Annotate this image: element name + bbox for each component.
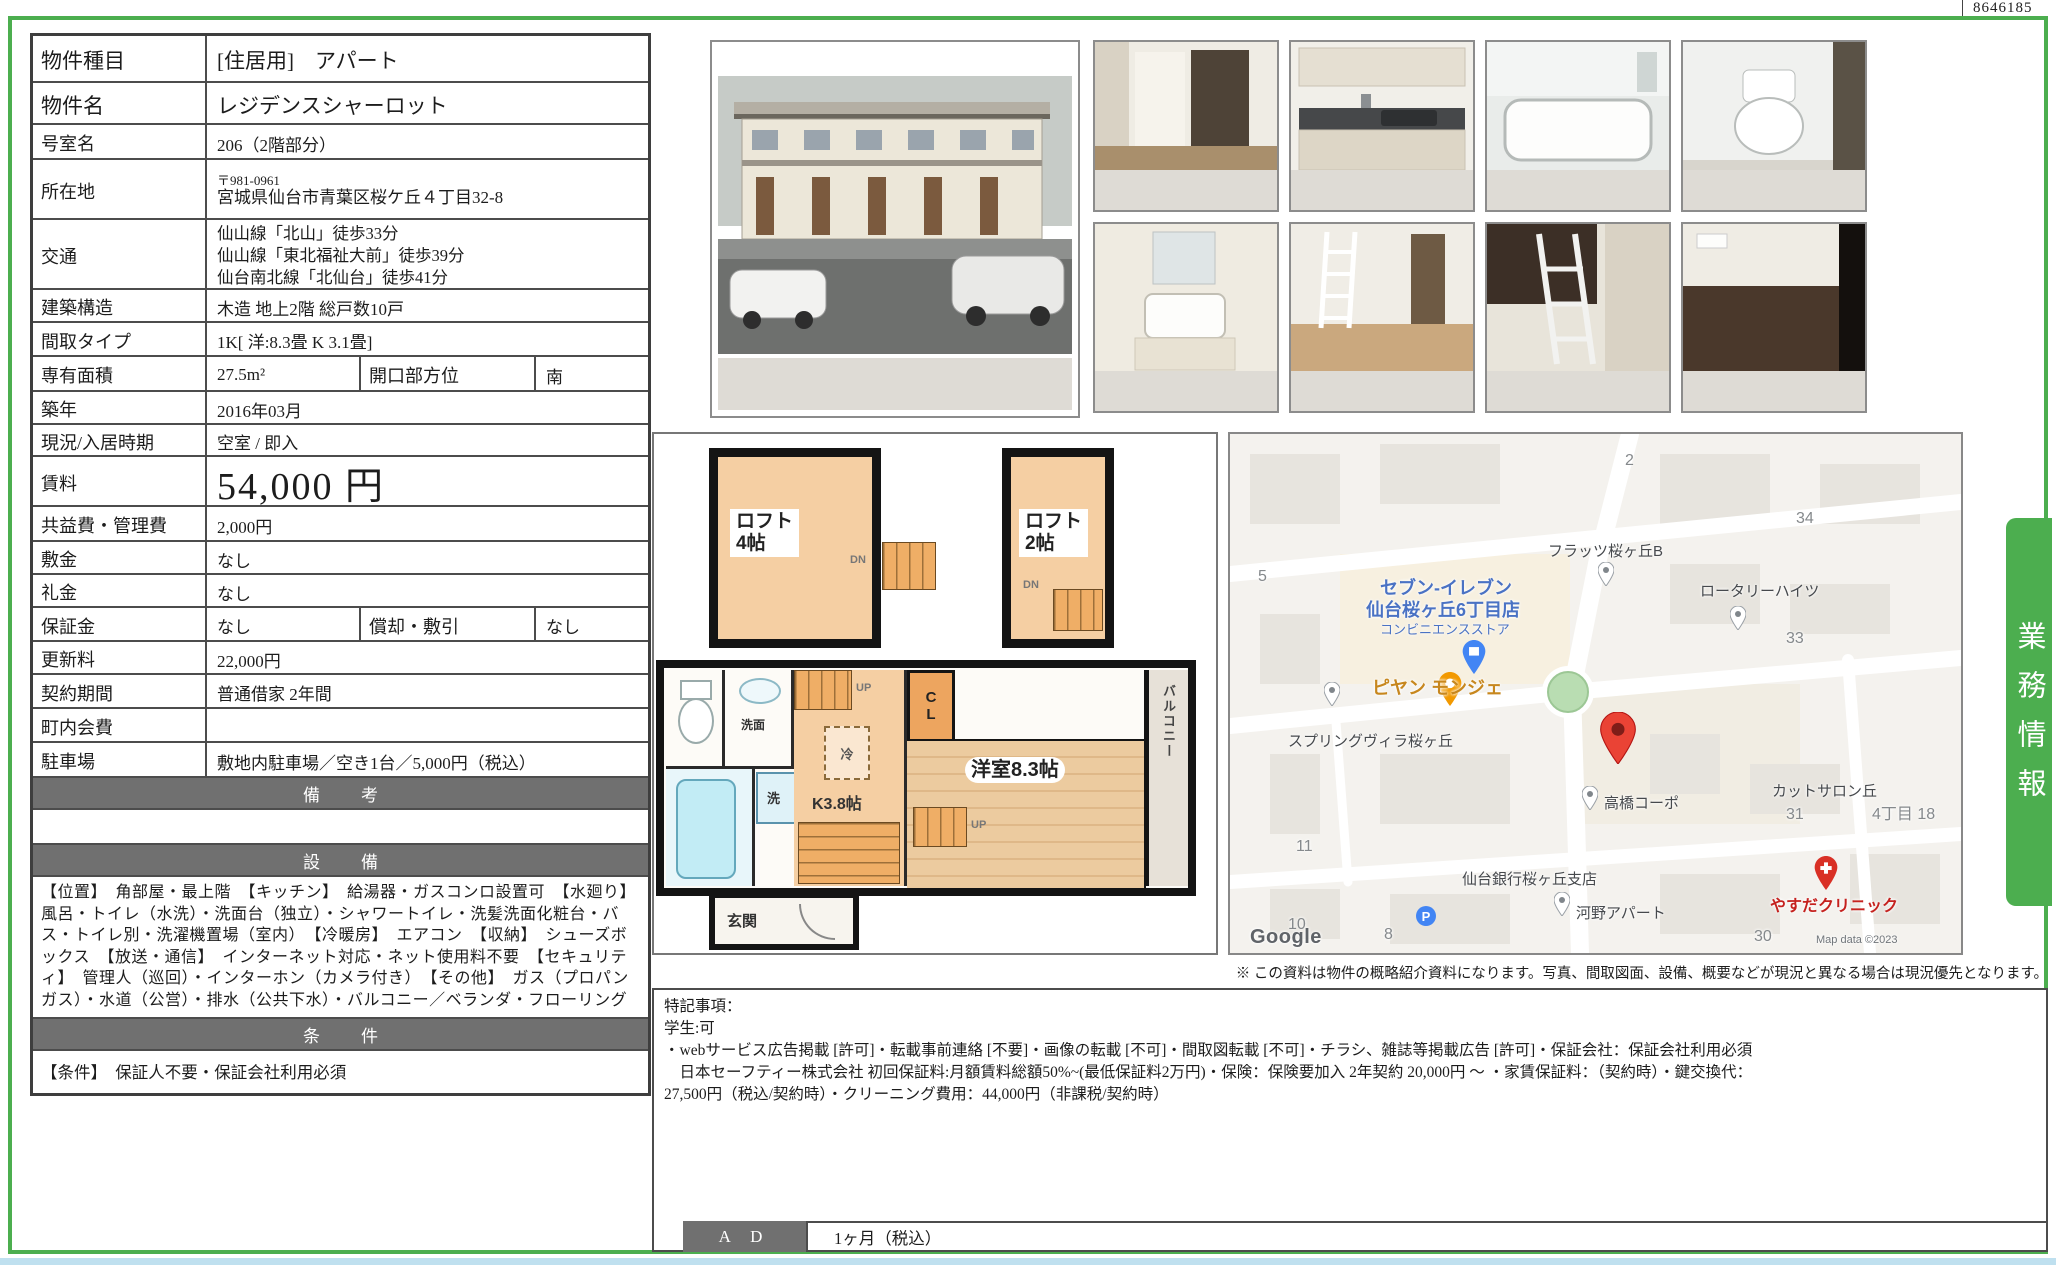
table-row: 号室名 206（2階部分） [33,123,648,158]
roundabout [1542,666,1594,718]
property-location-marker [1600,712,1636,764]
transit-line: 仙台南北線「北仙台」徒歩41分 [217,267,448,289]
notes-line: 特記事項： [664,996,2036,1018]
dn-label: DN [1023,579,1039,591]
map-label: 河野アパート [1576,902,1666,923]
equipment-header: 設 備 [33,843,648,875]
fridge-box: 冷 [824,726,870,780]
map-label-seven-eleven: コンビニエンスストア [1380,619,1510,638]
disclaimer-note: ※ この資料は物件の概略紹介資料になります。写真、間取図面、設備、概要などが現況… [1000,962,2048,983]
map-label: フラッツ桜ヶ丘B [1548,540,1663,561]
loft2-stairs [1053,589,1103,631]
map-label: 2 [1625,452,1634,470]
western-room-label: 洋室8.3帖 [965,757,1065,783]
kitchen-label: K3.8帖 [812,790,862,814]
row-value2: なし [536,608,648,640]
special-notes-box: 特記事項： 学生:可 ・webサービス広告掲載 [許可]・転載事前連絡 [不要]… [652,988,2048,1252]
photo-kitchen [1289,40,1475,212]
row-value: なし [207,575,648,606]
conditions-text: 【条件】 保証人不要・保証会社利用必須 [33,1049,648,1093]
row-value: 敷地内駐車場／空き1台／5,000円（税込） [207,743,648,776]
notes-line: ・webサービス広告掲載 [許可]・転載事前連絡 [不要]・画像の転載 [不可]… [664,1040,2036,1062]
rent-value: 54,000 円 [207,457,648,505]
google-logo: Google [1250,926,1322,949]
western-room: 洋室8.3帖 UP [907,739,1146,888]
washer-label: 洗 [767,788,780,807]
table-row: 駐車場 敷地内駐車場／空き1台／5,000円（税込） [33,741,648,776]
table-row: 礼金 なし [33,573,648,606]
floorplan-loft2-room: ロフト 2帖 DN [1002,448,1114,648]
location-map: P 2 34 フラッツ桜ヶ丘B 5 セブン-イレブン 仙台桜ヶ丘6丁目店 コンビ… [1228,432,1963,955]
map-label: 高橋コーポ [1604,792,1679,813]
convenience-store-pin [1462,640,1486,674]
map-label: ロータリーハイツ [1700,580,1819,601]
clinic-pin [1814,856,1838,890]
row-label: 物件名 [33,83,207,123]
table-row: 町内会費 [33,707,648,741]
table-row-address: 所在地 〒981-0961 宮城県仙台市青葉区桜ケ丘４丁目32-8 [33,158,648,218]
photo-building-exterior [710,40,1080,418]
entrance-room: 玄関 [709,892,859,950]
row-value: 2,000円 [207,507,648,540]
row-label: 駐車場 [33,743,207,776]
map-label: 34 [1796,510,1814,528]
table-row: 築年 2016年03月 [33,390,648,423]
balcony-strip: バルコニー [1144,670,1188,886]
row-label: 町内会費 [33,709,207,741]
photo-loft-room [1681,222,1867,413]
map-label: 4丁目 18 [1872,800,1935,824]
row-value: 206（2階部分） [207,125,648,158]
row-label2: 償却・敷引 [359,608,536,640]
table-row: 物件種目 [住居用] アパート [33,36,648,81]
table-row: 現況/入居時期 空室 / 即入 [33,423,648,455]
photo-room-with-loft-ladder [1289,222,1475,413]
floorplan-loft4-room: ロフト 4帖 [709,448,881,648]
row-label: 号室名 [33,125,207,158]
table-row-transit: 交通 仙山線「北山」徒歩33分 仙山線「東北福祉大前」徒歩39分 仙台南北線「北… [33,218,648,288]
row-label: 賃料 [33,457,207,505]
row-value: 22,000円 [207,642,648,673]
loft4-stairs [882,542,936,590]
building-exterior-image [712,42,1078,416]
address: 宮城県仙台市青葉区桜ケ丘４丁目32-8 [217,188,503,208]
map-label-clinic: やすだクリニック [1770,892,1898,916]
washbasin-icon [739,678,781,704]
row-value: 普通借家 2年間 [207,675,648,707]
loft2-label: ロフト 2帖 [1019,509,1088,557]
balcony-label: バルコニー [1159,684,1178,759]
closet-box: C L [907,670,955,742]
room-up-stairs [913,807,967,847]
bath-room [666,769,755,886]
map-attribution: Map data ©2023 [1816,934,1898,946]
row-label: 共益費・管理費 [33,507,207,540]
table-row: 建築構造 木造 地上2階 総戸数10戸 [33,288,648,321]
entrance-label: 玄関 [727,910,757,931]
washbasin-label: 洗面 [741,716,765,733]
up-label: UP [971,819,986,831]
row-value: 1K[ 洋:8.3畳 K 3.1畳] [207,323,648,355]
table-row: 契約期間 普通借家 2年間 [33,673,648,707]
row-label: 保証金 [33,608,207,640]
postal-code: 〒981-0961 [217,173,280,188]
photo-loft-ladder [1485,222,1671,413]
toilet-room [666,670,725,769]
row-value: 木造 地上2階 総戸数10戸 [207,290,648,321]
map-pin-gray [1598,562,1614,586]
row-value: 2016年03月 [207,392,648,423]
notes-line: 日本セーフティー株式会社 初回保証料:月額賃料総額50%~(最低保証料2万円)・… [664,1062,2036,1084]
notes-line: 学生:可 [664,1018,2036,1040]
toilet-tank-icon [680,680,712,700]
row-label: 建築構造 [33,290,207,321]
map-pin-gray [1554,892,1570,916]
row-value2: 南 [536,357,648,390]
property-table: 物件種目 [住居用] アパート 物件名 レジデンスシャーロット 号室名 206（… [30,33,651,1096]
washbasin-area: 洗面 [725,670,794,769]
map-label: 31 [1786,806,1804,824]
photo-toilet [1681,40,1867,212]
table-row: 共益費・管理費 2,000円 [33,505,648,540]
row-label: 間取タイプ [33,323,207,355]
lower-stairs [798,822,900,884]
table-row: 物件名 レジデンスシャーロット [33,81,648,123]
photo-entrance-hall [1093,40,1279,212]
map-label: 5 [1258,568,1267,586]
photo-bathroom [1485,40,1671,212]
up-stairs [794,670,852,710]
row-value: [住居用] アパート [207,36,648,81]
map-label: 8 [1384,926,1393,944]
row-label: 交通 [33,220,207,288]
row-label2: 開口部方位 [359,357,536,390]
up-label: UP [856,682,871,694]
remarks-empty-cell [33,808,648,843]
table-row-area: 専有面積 27.5m² 開口部方位 南 [33,355,648,390]
table-row: 更新料 22,000円 [33,640,648,673]
map-label: 30 [1754,928,1772,946]
photo-washbasin [1093,222,1279,413]
row-value: なし [207,608,359,640]
notes-line: 27,500円（税込/契約時）・クリーニング費用：44,000円（非課税/契約時… [664,1084,2036,1106]
row-label: 敷金 [33,542,207,573]
map-label: スプリングヴィラ桜ヶ丘 [1288,730,1453,751]
ad-label: A D [683,1221,806,1252]
map-label: 33 [1786,630,1804,648]
bottom-strip [0,1258,2056,1265]
door-arc-icon [799,904,835,940]
kitchen-area: UP 冷 K3.8帖 [794,670,907,886]
row-value: 27.5m² [207,357,359,390]
row-value: 空室 / 即入 [207,425,648,455]
row-label: 築年 [33,392,207,423]
equipment-text: 【位置】 角部屋・最上階 【キッチン】 給湯器・ガスコンロ設置可 【水廻り】 風… [33,875,648,1017]
table-row-rent: 賃料 54,000 円 [33,455,648,505]
table-row: 敷金 なし [33,540,648,573]
map-pin-gray [1730,606,1746,630]
row-value: レジデンスシャーロット [207,83,648,123]
map-label-restaurant: ピヤン モンジェ [1372,674,1503,700]
map-pin-gray [1324,682,1340,706]
transit-line: 仙山線「北山」徒歩33分 [217,223,399,245]
floorplan-main-floor: 洗面 洗 UP 冷 K3.8帖 C L 洋室8.3帖 [656,660,1196,896]
remarks-header: 備 考 [33,776,648,808]
row-label: 契約期間 [33,675,207,707]
washer-box: 洗 [756,772,796,824]
map-pin-gray [1582,786,1598,810]
bathtub-icon [676,779,736,879]
row-label: 所在地 [33,160,207,218]
dn-label: DN [850,554,866,566]
property-flyer-page: 8646185 物件種目 [住居用] アパート 物件名 レジデンスシャーロット … [0,0,2056,1265]
row-label: 専有面積 [33,357,207,390]
loft4-label: ロフト 4帖 [730,509,799,557]
table-row-deposit: 保証金 なし 償却・敷引 なし [33,606,648,640]
row-label: 物件種目 [33,36,207,81]
toilet-icon [678,698,714,744]
table-row: 間取タイプ 1K[ 洋:8.3畳 K 3.1畳] [33,321,648,355]
row-value [207,709,648,741]
ad-value: 1ヶ月（税込） [806,1221,2048,1252]
map-label: 11 [1296,838,1313,856]
row-value: なし [207,542,648,573]
map-label: 仙台銀行桜ヶ丘支店 [1462,868,1597,889]
row-label: 礼金 [33,575,207,606]
row-label: 現況/入居時期 [33,425,207,455]
floor-plan: ロフト 4帖 DN ロフト 2帖 DN 洗面 [652,432,1218,955]
business-info-tab[interactable]: 業務情報 [2006,518,2052,906]
business-info-tab-label: 業務情報 [2008,607,2050,817]
parking-icon: P [1416,906,1436,926]
row-label: 更新料 [33,642,207,673]
transit-line: 仙山線「東北福祉大前」徒歩39分 [217,245,465,267]
map-label: カットサロン丘 [1772,780,1877,801]
conditions-header: 条 件 [33,1017,648,1049]
